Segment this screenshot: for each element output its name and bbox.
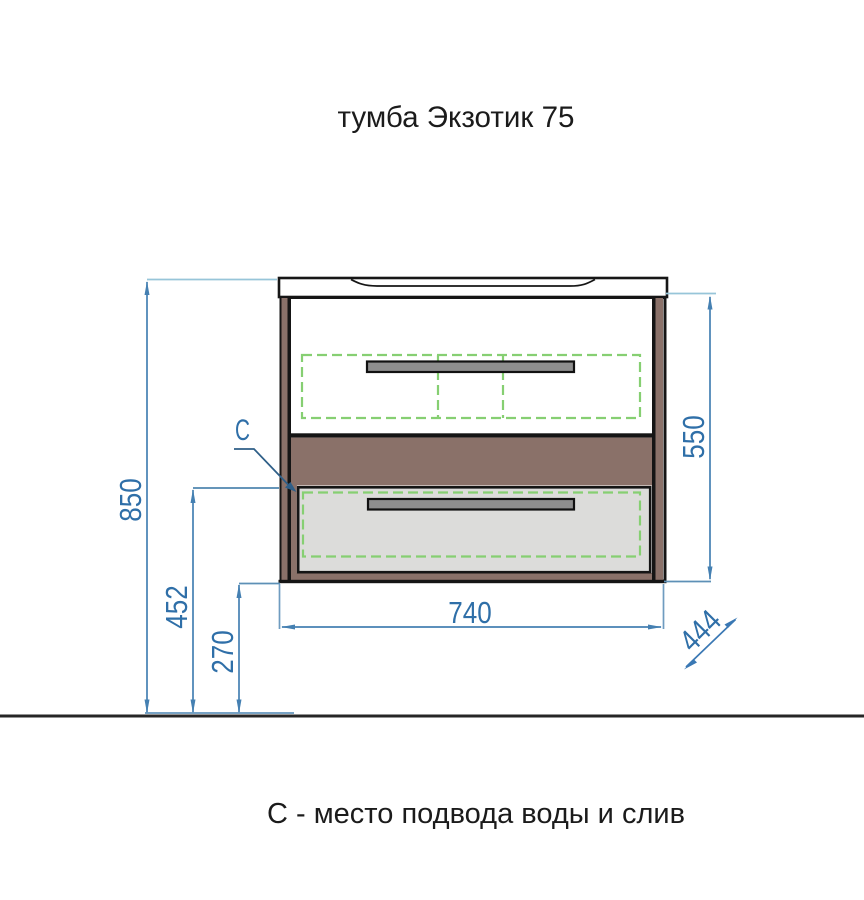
svg-text:850: 850 xyxy=(113,478,148,522)
svg-text:С - место подвода воды и слив: С - место подвода воды и слив xyxy=(267,798,685,830)
svg-text:452: 452 xyxy=(159,585,194,629)
svg-text:тумба Экзотик 75: тумба Экзотик 75 xyxy=(338,101,575,134)
svg-text:550: 550 xyxy=(676,415,711,459)
svg-text:270: 270 xyxy=(205,630,240,674)
svg-text:740: 740 xyxy=(448,595,492,630)
svg-text:С: С xyxy=(235,414,250,447)
